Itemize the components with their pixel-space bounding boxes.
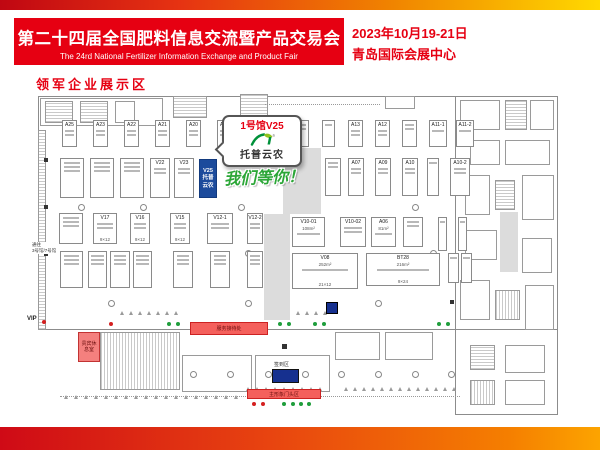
booth-code: A11-2	[459, 122, 472, 128]
walkway-mark	[204, 395, 208, 399]
booth-unlabeled[interactable]	[120, 158, 144, 198]
red-door-dot	[42, 320, 46, 324]
corridor-label-line2: 3号馆/7号馆	[32, 248, 56, 253]
booth-name-smudge	[154, 168, 167, 170]
checkin-area-label: 签到区	[274, 361, 289, 368]
walkway-mark	[194, 395, 198, 399]
booth-unlabeled[interactable]	[110, 251, 130, 288]
booth-name-smudge	[250, 255, 260, 257]
booth-name-smudge	[114, 255, 127, 257]
booth-name-smudge	[378, 172, 388, 174]
booth-name-smudge	[134, 223, 147, 225]
booth-name-smudge	[328, 162, 338, 164]
booth-name-smudge	[375, 233, 392, 235]
booth-name-smudge	[64, 162, 80, 164]
walkway-mark	[389, 387, 393, 391]
booth-name-smudge	[124, 170, 140, 172]
booth-dimensions: 9×24	[398, 279, 408, 284]
booth-code: V15	[176, 215, 185, 221]
booth-name-smudge	[405, 172, 415, 174]
booth-unlabeled[interactable]	[461, 253, 472, 283]
booth-unlabeled[interactable]	[60, 158, 84, 198]
booth-unlabeled[interactable]	[247, 251, 263, 288]
walkway-mark	[398, 387, 402, 391]
booth-name-smudge	[96, 130, 105, 132]
booth-size: 216m²	[397, 262, 410, 267]
highlight-booth-name-1: 托普	[202, 175, 213, 182]
booth-name-smudge	[302, 269, 348, 271]
booth-name-smudge	[177, 255, 190, 257]
red-door-dot	[252, 402, 256, 406]
booth-A20[interactable]: A20	[186, 120, 201, 147]
booth-name-smudge	[405, 168, 415, 170]
booth-name-smudge	[124, 166, 140, 168]
bottom-gradient-bar	[0, 427, 600, 450]
column-pillar	[190, 371, 197, 378]
room-structure	[522, 175, 554, 220]
booth-name-smudge	[211, 227, 228, 229]
booth-code: A20	[189, 122, 198, 128]
corridor-label-line1: 通往	[32, 242, 41, 247]
booth-V15[interactable]: V159×12	[170, 213, 190, 244]
booth-unlabeled[interactable]	[210, 251, 230, 288]
booth-code: V08	[321, 255, 330, 261]
booth-name-smudge	[64, 263, 79, 265]
walkway-mark	[64, 395, 68, 399]
black-structure	[450, 300, 454, 304]
walkway-mark	[134, 395, 138, 399]
booth-A12[interactable]: A12	[375, 120, 390, 147]
walkway-mark	[147, 311, 151, 315]
room-structure	[470, 140, 500, 165]
column-pillar	[78, 204, 85, 211]
booth-name-smudge	[351, 172, 361, 174]
booth-name-smudge	[114, 263, 127, 265]
booth-code: A09	[379, 160, 388, 166]
booth-dimensions: 9×12	[100, 237, 110, 242]
green-door-dot	[287, 322, 291, 326]
booth-A10[interactable]: A10	[402, 158, 418, 196]
booth-name-smudge	[136, 263, 148, 265]
checkin-area-box	[272, 369, 299, 383]
booth-code: V16	[136, 215, 145, 221]
walkway-mark	[353, 387, 357, 391]
booth-unlabeled[interactable]	[402, 120, 417, 147]
walkway-mark	[184, 395, 188, 399]
booth-A10-2[interactable]: A10-2	[450, 158, 470, 196]
hatchv-structure	[100, 332, 180, 390]
walkway-mark	[234, 395, 238, 399]
black-structure	[282, 344, 287, 349]
callout-brand-name: 托普云农	[240, 146, 284, 161]
hatch-structure	[173, 96, 207, 118]
green-door-dot	[282, 402, 286, 406]
booth-name-smudge	[378, 168, 388, 170]
walkway-mark	[120, 311, 124, 315]
booth-name-smudge	[178, 172, 191, 174]
main-gate-area: 主形象门头区	[247, 389, 321, 399]
booth-name-smudge	[463, 257, 469, 259]
booth-code: V23	[180, 160, 189, 166]
booth-code: V22	[156, 160, 165, 166]
booth-dimensions: 21×12	[319, 282, 332, 287]
booth-name-smudge	[65, 134, 74, 136]
walkway-mark	[156, 311, 160, 315]
walkway-mark	[314, 311, 318, 315]
gray-structure	[264, 214, 290, 320]
room-structure	[385, 332, 433, 360]
booth-unlabeled[interactable]	[438, 217, 447, 251]
booth-V23[interactable]: V23	[174, 158, 194, 198]
booth-A22[interactable]: A22	[124, 120, 139, 147]
booth-name-smudge	[96, 134, 105, 136]
booth-name-smudge	[214, 259, 227, 261]
walkway-mark	[452, 387, 456, 391]
booth-name-smudge	[407, 221, 420, 223]
column-pillar	[302, 371, 309, 378]
booth-name-smudge	[429, 162, 436, 164]
walkway-mark	[214, 395, 218, 399]
booth-A25[interactable]: A25	[62, 120, 77, 147]
booth-name-smudge	[454, 172, 467, 174]
room-structure	[385, 96, 415, 109]
booth-code: A25	[65, 122, 74, 128]
booth-unlabeled[interactable]	[427, 158, 439, 196]
walkway-mark	[425, 387, 429, 391]
booth-A23[interactable]: A23	[93, 120, 108, 147]
booth-name-smudge	[297, 233, 319, 235]
column-pillar	[338, 371, 345, 378]
booth-A11-2[interactable]: A11-2	[456, 120, 474, 147]
booth-name-smudge	[328, 166, 338, 168]
booth-V12-2[interactable]: V12-2	[247, 213, 263, 244]
walkway-mark	[104, 395, 108, 399]
booth-name-smudge	[65, 130, 74, 132]
hatch-structure	[470, 345, 495, 370]
room-structure	[335, 332, 380, 360]
booth-name-smudge	[450, 257, 456, 259]
booth-name-smudge	[154, 172, 167, 174]
corridor-to-halls-label: 通往 3号馆/7号馆	[32, 242, 56, 254]
booth-name-smudge	[459, 130, 471, 132]
service-desk-area: 服务接待处	[190, 322, 268, 335]
booth-unlabeled[interactable]	[325, 158, 341, 196]
svg-text:®: ®	[273, 134, 276, 138]
booth-name-smudge	[344, 231, 361, 233]
booth-V25-highlight[interactable]: V25 托普 云农	[199, 159, 217, 198]
booth-name-smudge	[214, 263, 227, 265]
booth-name-smudge	[91, 255, 103, 257]
booth-name-smudge	[97, 223, 113, 225]
booth-name-smudge	[454, 168, 467, 170]
booth-name-smudge	[127, 130, 136, 132]
booth-code: BT28	[397, 255, 409, 261]
booth-code: A13	[351, 122, 360, 128]
floorplan: VIP 通往 3号馆/7号馆 贵宾休息室 服务接待处 签到区 主形象门头区 V2…	[0, 0, 600, 450]
booth-unlabeled[interactable]	[59, 213, 83, 244]
booth-code: A10	[406, 160, 415, 166]
green-door-dot	[291, 402, 295, 406]
booth-code: V17	[101, 215, 110, 221]
booth-code: A23	[96, 122, 105, 128]
booth-name-smudge	[325, 124, 333, 126]
booth-code: A21	[158, 122, 167, 128]
highlight-booth-code: V25	[203, 168, 213, 175]
red-door-dot	[261, 402, 265, 406]
walkway-mark	[165, 311, 169, 315]
booth-name-smudge	[432, 130, 444, 132]
booth-name-smudge	[250, 223, 260, 225]
booth-unlabeled[interactable]	[322, 120, 335, 147]
column-pillar	[108, 300, 115, 307]
column-pillar	[245, 300, 252, 307]
column-pillar	[238, 204, 245, 211]
booth-size: 81m²	[378, 226, 388, 231]
booth-name-smudge	[189, 130, 198, 132]
walkway-mark	[380, 387, 384, 391]
booth-A09[interactable]: A09	[375, 158, 391, 196]
column-pillar	[375, 300, 382, 307]
booth-name-smudge	[344, 227, 361, 229]
booth-code: A10-2	[453, 160, 466, 166]
walkway-mark	[174, 395, 178, 399]
booth-unlabeled[interactable]	[173, 251, 193, 288]
walkway-mark	[129, 311, 133, 315]
walkway-mark	[138, 311, 142, 315]
walkway-mark	[144, 395, 148, 399]
booth-V22[interactable]: V22	[150, 158, 170, 198]
fair-floorplan-poster: 第二十四届全国肥料信息交流暨产品交易会 The 24rd National Fe…	[0, 0, 600, 450]
black-structure	[44, 205, 48, 209]
booth-name-smudge	[124, 162, 140, 164]
vip-lounge-area: 贵宾休息室	[78, 332, 100, 362]
room-structure	[530, 100, 554, 130]
booth-A07[interactable]: A07	[348, 158, 364, 196]
booth-code: V10-02	[345, 219, 361, 225]
walkway-mark	[305, 311, 309, 315]
booth-code: A22	[127, 122, 136, 128]
booth-callout-bubble: 1号馆V25 ® 托普云农	[222, 115, 302, 167]
booth-code: V12-1	[213, 215, 226, 221]
booth-name-smudge	[377, 269, 429, 271]
booth-name-smudge	[407, 225, 420, 227]
booth-name-smudge	[378, 130, 387, 132]
walkway-mark	[224, 395, 228, 399]
booth-name-smudge	[134, 227, 147, 229]
booth-name-smudge	[351, 168, 361, 170]
slogan-text: 我们等你！	[224, 163, 305, 190]
hatch-structure	[495, 180, 515, 210]
booth-V08[interactable]: V08252m²21×12	[292, 253, 358, 289]
booth-name-smudge	[136, 259, 148, 261]
booth-code: A12	[378, 122, 387, 128]
room-structure	[460, 280, 490, 320]
booth-dimensions: 9×12	[175, 237, 185, 242]
booth-name-smudge	[94, 170, 110, 172]
booth-name-smudge	[158, 134, 167, 136]
room-structure	[525, 285, 554, 330]
green-door-dot	[167, 322, 171, 326]
walkway-mark	[154, 395, 158, 399]
booth-name-smudge	[91, 259, 103, 261]
column-pillar	[265, 371, 272, 378]
walkway-mark	[407, 387, 411, 391]
booth-name-smudge	[214, 255, 227, 257]
highlight-booth-name-2: 云农	[202, 183, 213, 190]
room-structure	[505, 380, 545, 405]
green-door-dot	[278, 322, 282, 326]
booth-code: A11-1	[432, 122, 445, 128]
column-pillar	[412, 204, 419, 211]
booth-V10-01[interactable]: V10-01108m²	[292, 217, 325, 247]
booth-A13[interactable]: A13	[348, 120, 363, 147]
booth-name-smudge	[63, 221, 79, 223]
booth-name-smudge	[174, 227, 187, 229]
booth-code: V12-2	[248, 215, 261, 221]
booth-name-smudge	[250, 263, 260, 265]
booth-dimensions: 9×12	[135, 237, 145, 242]
walkway-mark	[124, 395, 128, 399]
column-pillar	[140, 204, 147, 211]
booth-name-smudge	[351, 134, 360, 136]
booth-code: A06	[379, 219, 388, 225]
booth-name-smudge	[351, 130, 360, 132]
booth-BT28[interactable]: BT28216m²9×24	[366, 253, 440, 286]
callout-hall-booth: 1号馆V25	[240, 121, 283, 132]
walkway-mark	[164, 395, 168, 399]
booth-unlabeled[interactable]	[448, 253, 459, 283]
hatchv-structure	[470, 380, 495, 405]
booth-unlabeled[interactable]	[88, 251, 107, 288]
booth-name-smudge	[64, 166, 80, 168]
booth-name-smudge	[211, 223, 228, 225]
walkway-mark	[362, 387, 366, 391]
dotline-structure	[265, 104, 380, 105]
booth-V16[interactable]: V169×12	[130, 213, 150, 244]
walkway-mark	[416, 387, 420, 391]
walkway-mark	[296, 311, 300, 315]
vip-entrance-label: VIP	[27, 316, 37, 322]
green-door-dot	[437, 322, 441, 326]
booth-name-smudge	[94, 162, 110, 164]
booth-name-smudge	[189, 134, 198, 136]
walkway-mark	[84, 395, 88, 399]
booth-V17[interactable]: V179×12	[93, 213, 117, 244]
booth-name-smudge	[114, 259, 127, 261]
column-pillar	[412, 371, 419, 378]
booth-code: V10-01	[300, 219, 316, 225]
booth-name-smudge	[127, 134, 136, 136]
booth-name-smudge	[94, 166, 110, 168]
column-pillar	[227, 371, 234, 378]
green-door-dot	[322, 322, 326, 326]
gray-structure	[500, 212, 518, 272]
booth-name-smudge	[378, 134, 387, 136]
booth-size: 108m²	[302, 226, 315, 231]
booth-size: 252m²	[319, 262, 332, 267]
booth-unlabeled[interactable]	[90, 158, 114, 198]
hatch-structure	[505, 100, 527, 130]
booth-name-smudge	[64, 259, 79, 261]
walkway-mark	[74, 395, 78, 399]
room-structure	[505, 140, 550, 165]
booth-name-smudge	[63, 225, 79, 227]
walkway-mark	[94, 395, 98, 399]
walkway-mark	[114, 395, 118, 399]
walkway-mark	[434, 387, 438, 391]
green-door-dot	[307, 402, 311, 406]
booth-name-smudge	[405, 124, 414, 126]
booth-unlabeled[interactable]	[403, 217, 423, 247]
booth-unlabeled[interactable]	[133, 251, 152, 288]
booth-V12-1[interactable]: V12-1	[207, 213, 233, 244]
booth-A06[interactable]: A0681m²	[371, 217, 396, 247]
booth-name-smudge	[177, 259, 190, 261]
walkway-mark	[174, 311, 178, 315]
booth-name-smudge	[158, 130, 167, 132]
room-structure	[505, 345, 545, 373]
booth-name-smudge	[91, 263, 103, 265]
booth-name-smudge	[174, 223, 187, 225]
booth-name-smudge	[178, 168, 191, 170]
booth-name-smudge	[64, 255, 79, 257]
column-pillar	[375, 371, 382, 378]
booth-name-smudge	[177, 263, 190, 265]
walkway-mark	[443, 387, 447, 391]
walkway-mark	[371, 387, 375, 391]
booth-name-smudge	[136, 255, 148, 257]
booth-V10-02[interactable]: V10-02	[340, 217, 366, 247]
booth-name-smudge	[97, 227, 113, 229]
room-structure	[522, 238, 552, 273]
green-door-dot	[176, 322, 180, 326]
booth-code: A07	[352, 160, 361, 166]
booth-unlabeled[interactable]	[60, 251, 83, 288]
booth-name-smudge	[250, 259, 260, 261]
black-structure	[44, 158, 48, 162]
booth-A11-1[interactable]: A11-1	[429, 120, 447, 147]
red-door-dot	[109, 322, 113, 326]
green-door-dot	[446, 322, 450, 326]
walkway-mark	[344, 387, 348, 391]
green-door-dot	[299, 402, 303, 406]
column-pillar	[448, 371, 455, 378]
blue-structure	[326, 302, 338, 314]
booth-A21[interactable]: A21	[155, 120, 170, 147]
green-door-dot	[313, 322, 317, 326]
booth-unlabeled[interactable]	[458, 217, 467, 251]
hatchv-structure	[495, 290, 520, 320]
topu-cloud-agri-logo-icon: ®	[248, 133, 276, 146]
booth-name-smudge	[250, 227, 260, 229]
booth-name-smudge	[460, 221, 465, 223]
booth-name-smudge	[440, 221, 445, 223]
booth-name-smudge	[63, 217, 79, 219]
booth-name-smudge	[405, 128, 414, 130]
booth-name-smudge	[64, 170, 80, 172]
